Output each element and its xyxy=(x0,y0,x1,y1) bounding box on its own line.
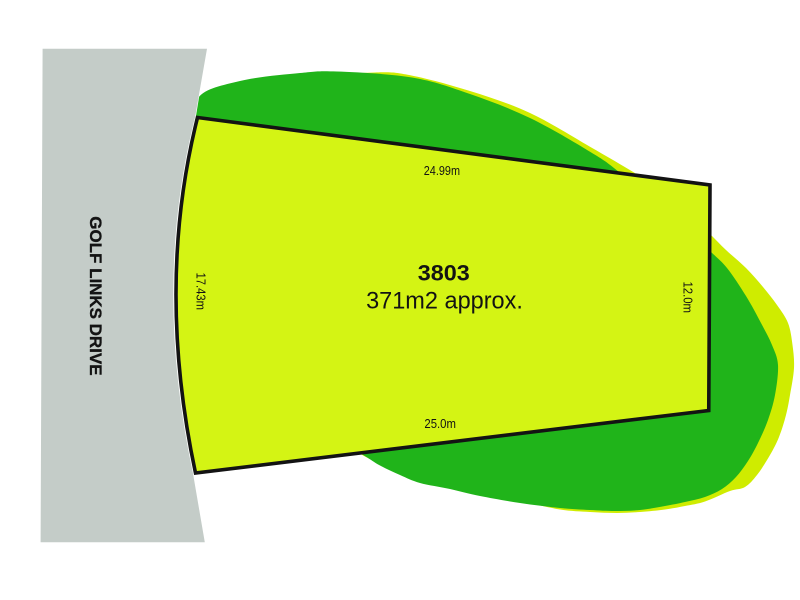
svg-text:GOLF LINKS DRIVE: GOLF LINKS DRIVE xyxy=(86,216,104,375)
svg-text:25.0m: 25.0m xyxy=(424,416,456,431)
svg-text:12.0m: 12.0m xyxy=(681,282,696,314)
svg-text:371m2 approx.: 371m2 approx. xyxy=(366,288,523,315)
svg-text:3803: 3803 xyxy=(418,261,470,286)
svg-text:17.43m: 17.43m xyxy=(194,273,209,311)
svg-text:24.99m: 24.99m xyxy=(424,163,460,178)
